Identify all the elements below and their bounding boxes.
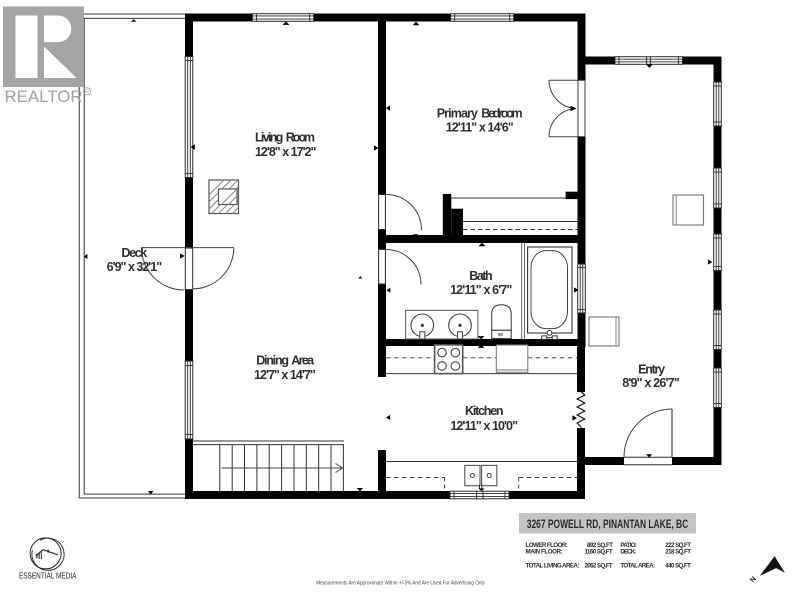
svg-text:Area: Area: [291, 354, 315, 368]
svg-text:12'8" x 17'2": 12'8" x 17'2": [255, 145, 317, 159]
svg-text:TOTAL AREA:: TOTAL AREA:: [620, 563, 655, 570]
svg-text:ESSENTIAL MEDIA: ESSENTIAL MEDIA: [19, 572, 77, 581]
svg-text:12'11" x 10'0": 12'11" x 10'0": [450, 419, 518, 433]
svg-text:1160 SQ.FT: 1160 SQ.FT: [585, 549, 613, 556]
svg-text:Bedroom: Bedroom: [481, 106, 522, 120]
svg-text:Measurements Are Approximate W: Measurements Are Approximate Within +/-5…: [316, 581, 485, 587]
svg-text:Deck: Deck: [121, 246, 147, 260]
svg-text:12'7" x 14'7": 12'7" x 14'7": [254, 368, 316, 382]
svg-text:Bath: Bath: [469, 269, 492, 283]
svg-text:MAIN FLOOR:: MAIN FLOOR:: [526, 549, 563, 556]
svg-text:6'9" x 32'1": 6'9" x 32'1": [107, 260, 163, 274]
svg-text:Room: Room: [286, 130, 315, 144]
svg-text:2052 SQ.FT: 2052 SQ.FT: [585, 563, 613, 570]
svg-text:Kitchen: Kitchen: [465, 404, 504, 418]
svg-text:Dining: Dining: [256, 354, 289, 368]
svg-text:12'11" x 6'7": 12'11" x 6'7": [450, 283, 512, 297]
svg-text:R: R: [85, 89, 89, 95]
svg-text:TOTAL LIVING AREA:: TOTAL LIVING AREA:: [526, 563, 580, 570]
svg-text:440 SQ.FT: 440 SQ.FT: [665, 563, 691, 570]
svg-text:DECK:: DECK:: [620, 549, 636, 556]
svg-text:8'9" x 26'7": 8'9" x 26'7": [622, 376, 680, 390]
svg-text:REALTOR: REALTOR: [5, 88, 83, 106]
svg-text:Primary: Primary: [437, 106, 478, 120]
svg-text:Entry: Entry: [638, 363, 665, 377]
svg-text:3267 POWELL RD, PINANTAN LAKE,: 3267 POWELL RD, PINANTAN LAKE, BC: [527, 517, 689, 531]
svg-text:12'11" x 14'6": 12'11" x 14'6": [446, 121, 514, 135]
svg-text:218 SQ.FT: 218 SQ.FT: [665, 549, 691, 556]
svg-text:Living: Living: [255, 130, 283, 144]
